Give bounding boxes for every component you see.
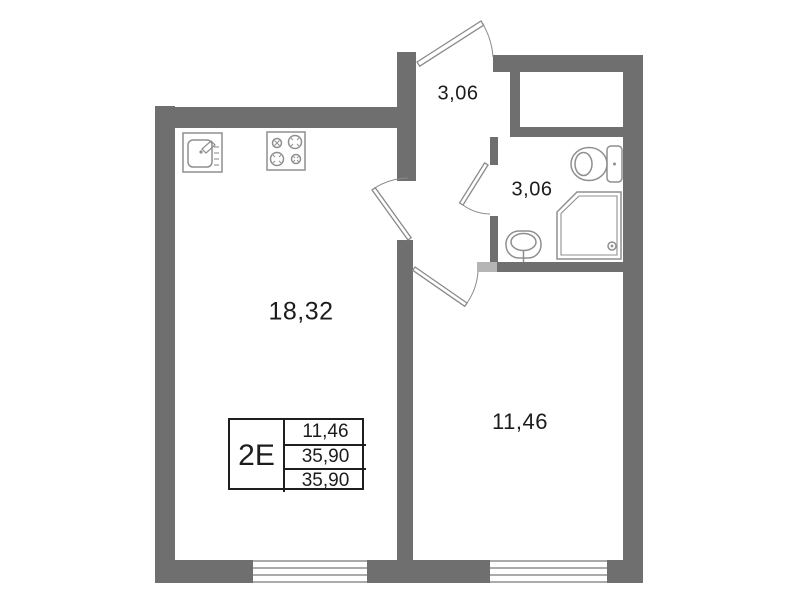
apartment-info-box: 2Е 11,46 35,90 35,90 [228,418,364,490]
toilet-icon [571,146,622,182]
living-room-door-leaf [372,188,411,240]
wall-closet-left [510,55,520,137]
overall-area-value: 35,90 [285,468,366,492]
total-area-value: 35,90 [285,444,366,468]
hall-area-label: 3,06 [438,83,479,106]
apartment-type-label: 2Е [230,420,285,492]
floor-plan-drawing [0,0,799,600]
living-area-value: 11,46 [285,420,366,444]
bedroom-area-label: 11,46 [492,409,548,435]
wall-interroom [397,240,413,562]
bathroom-area-label: 3,06 [512,179,553,202]
wall-bathroom-bottom [495,262,623,272]
shower-icon [557,192,621,259]
wall-kitchen-top [155,107,416,128]
bathroom-door [460,163,490,214]
entrance-door [417,21,493,66]
window-bedroom [490,560,607,583]
living-room-door [372,178,411,240]
bedroom-door-leaf [413,267,467,306]
bedroom-door-arc [467,272,478,303]
wall-left [155,106,175,583]
washbasin-icon [506,231,541,262]
window-living-room [253,560,367,583]
bathroom-door-arc [463,205,490,214]
wall-bathroom-left-upper [490,137,498,165]
walls [155,52,643,583]
wall-bathroom-left-lower [490,216,498,264]
wall-hall-left-upper [397,52,416,181]
stove-icon [267,132,305,170]
kitchen-sink-icon [183,133,222,172]
entrance-door-leaf [417,21,484,66]
wall-stub-light [477,262,497,272]
doors [372,21,493,306]
living-room-area-label: 18,32 [268,298,333,327]
floor-plan-page: 18,32 11,46 3,06 3,06 2Е 11,46 35,90 35,… [0,0,799,600]
bathroom-door-leaf [460,163,488,205]
wall-right [623,55,643,583]
bedroom-door [413,267,478,306]
wall-closet-bottom [510,127,623,137]
